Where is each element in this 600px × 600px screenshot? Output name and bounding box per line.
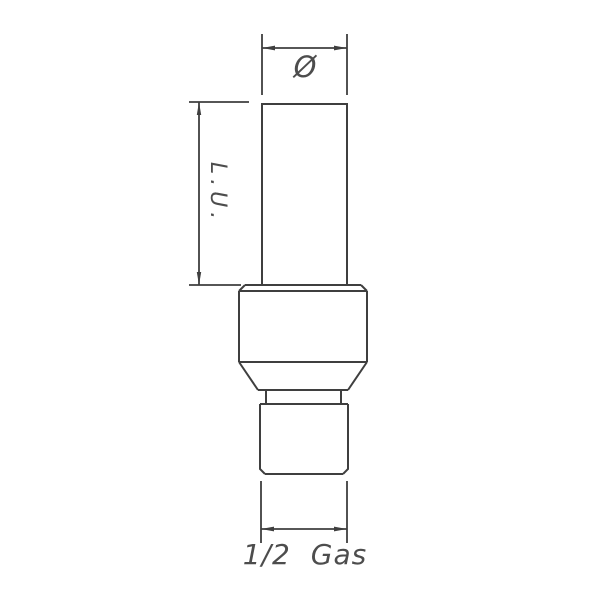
fitting-technical-drawing: Ø L.U. 1/2 Gas: [0, 0, 600, 600]
neck-outline: [266, 390, 341, 404]
drawing-canvas: Ø L.U. 1/2 Gas: [0, 0, 600, 600]
line-work: [189, 34, 367, 543]
hex-body-taper-outline: [239, 362, 367, 390]
upper-cylinder-outline: [262, 104, 347, 285]
length-arrow-up-icon: [197, 102, 201, 115]
length-arrow-down-icon: [197, 272, 201, 285]
diameter-arrow-right-icon: [334, 46, 347, 51]
thread-arrow-right-icon: [334, 527, 347, 532]
annotation-labels: Ø L.U. 1/2 Gas: [205, 50, 367, 571]
thread-extension-lines: [261, 481, 347, 543]
diameter-symbol: Ø: [293, 50, 318, 84]
dimension-line-work: [189, 34, 347, 543]
arrowheads: [197, 46, 347, 532]
thread-size-label: 1/2 Gas: [243, 538, 367, 571]
thread-dimension: [261, 481, 347, 543]
hex-body-outline: [239, 285, 367, 362]
diameter-arrow-left-icon: [262, 46, 275, 51]
part-outline: [239, 104, 367, 474]
useful-length-label: L.U.: [205, 162, 230, 224]
threaded-stud-outline: [260, 404, 348, 474]
thread-arrow-left-icon: [261, 527, 274, 532]
